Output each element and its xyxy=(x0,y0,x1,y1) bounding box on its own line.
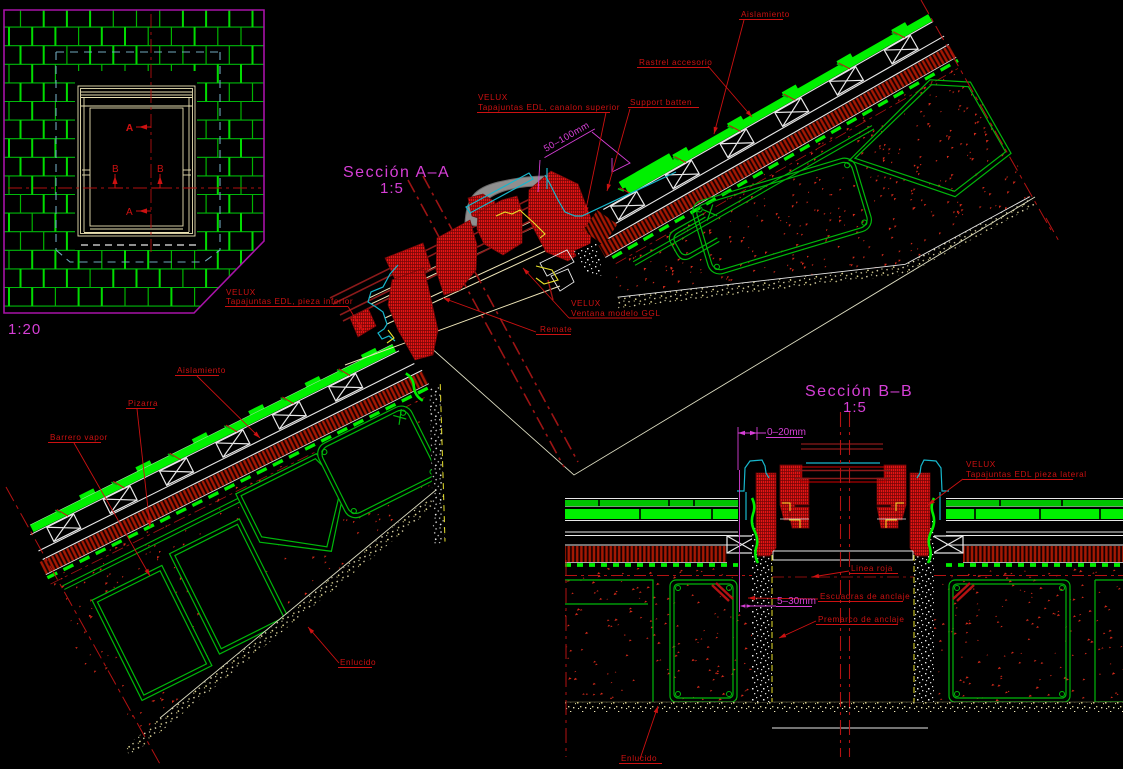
svg-text:A: A xyxy=(126,207,133,218)
svg-text:Tapajuntas EDL pieza lateral: Tapajuntas EDL pieza lateral xyxy=(966,470,1087,479)
svg-text:Enlucido: Enlucido xyxy=(340,658,376,667)
svg-text:Rastrel accesorio: Rastrel accesorio xyxy=(639,58,712,67)
svg-text:Pizarra: Pizarra xyxy=(128,399,158,408)
svg-text:VELUX: VELUX xyxy=(478,93,508,102)
svg-text:Sección B–B: Sección B–B xyxy=(805,383,913,400)
svg-text:VELUX: VELUX xyxy=(571,299,601,308)
svg-text:Linea roja: Linea roja xyxy=(851,564,893,573)
svg-text:5–30mm: 5–30mm xyxy=(777,596,816,607)
svg-text:Barrero vapor: Barrero vapor xyxy=(50,433,108,442)
svg-text:B: B xyxy=(112,164,119,175)
svg-text:A: A xyxy=(126,123,133,134)
svg-text:Aislamiento: Aislamiento xyxy=(741,10,790,19)
svg-text:Remate: Remate xyxy=(540,325,572,334)
svg-text:Aislamiento: Aislamiento xyxy=(177,366,226,375)
svg-text:1:20: 1:20 xyxy=(8,321,41,338)
svg-text:VELUX: VELUX xyxy=(966,460,996,469)
svg-text:1:5: 1:5 xyxy=(843,399,867,416)
svg-text:Ventana modelo GGL: Ventana modelo GGL xyxy=(571,309,661,318)
svg-text:VELUX: VELUX xyxy=(226,288,256,297)
svg-text:B: B xyxy=(157,164,164,175)
svg-text:Premarco de anclaje: Premarco de anclaje xyxy=(818,615,905,624)
svg-text:Tapajuntas EDL, canalon superi: Tapajuntas EDL, canalon superior xyxy=(478,103,620,112)
svg-text:1:5: 1:5 xyxy=(380,180,404,197)
svg-text:Tapajuntas EDL, pieza inferior: Tapajuntas EDL, pieza inferior xyxy=(226,297,353,306)
svg-text:0–20mm: 0–20mm xyxy=(767,427,806,438)
svg-text:Support batten: Support batten xyxy=(630,98,692,107)
svg-text:Escuadras de anclaje: Escuadras de anclaje xyxy=(820,592,910,601)
svg-text:Sección A–A: Sección A–A xyxy=(343,164,450,181)
svg-text:Enlucido: Enlucido xyxy=(621,754,657,763)
